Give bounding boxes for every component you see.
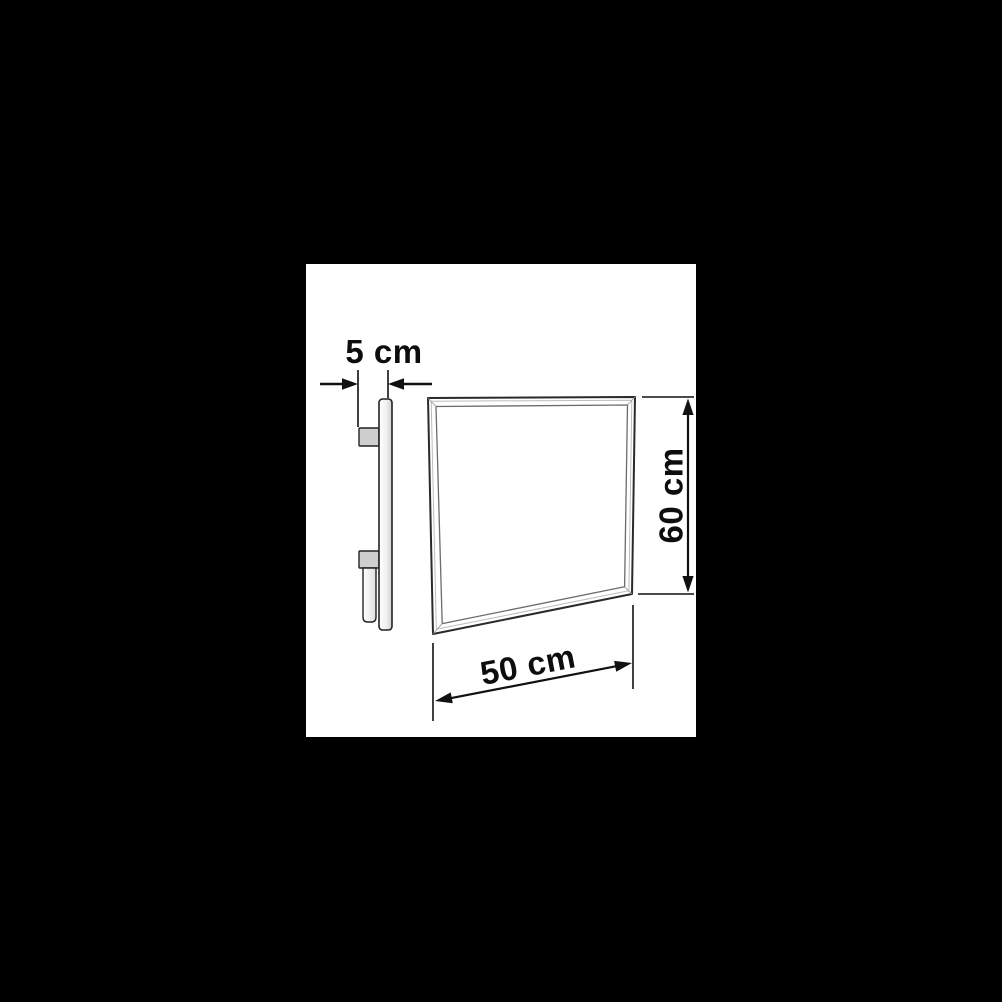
width-arrow-left-icon xyxy=(435,692,453,703)
dimension-depth: 5 cm xyxy=(320,333,432,427)
mount-bracket-bottom xyxy=(359,551,379,568)
page-background: 5 cm 60 cm 50 cm xyxy=(0,0,1002,1002)
mount-bracket-top xyxy=(359,428,379,446)
height-arrow-up-icon xyxy=(682,399,693,416)
height-dimension-label: 60 cm xyxy=(653,447,690,543)
panel-dimension-diagram: 5 cm 60 cm 50 cm xyxy=(306,264,696,737)
mount-bracket-bottom-stem xyxy=(363,568,376,622)
panel-inner-face xyxy=(436,405,628,624)
panel-front-view xyxy=(428,397,635,634)
dimension-height: 60 cm xyxy=(638,397,694,594)
depth-arrow-left-icon xyxy=(388,378,404,390)
height-arrow-down-icon xyxy=(682,576,693,593)
depth-arrow-right-icon xyxy=(342,378,358,390)
depth-dimension-label: 5 cm xyxy=(345,333,422,370)
width-arrow-right-icon xyxy=(614,661,632,672)
panel-side-view xyxy=(359,399,392,630)
diagram-canvas: 5 cm 60 cm 50 cm xyxy=(306,264,696,737)
panel-side-profile xyxy=(379,399,392,630)
